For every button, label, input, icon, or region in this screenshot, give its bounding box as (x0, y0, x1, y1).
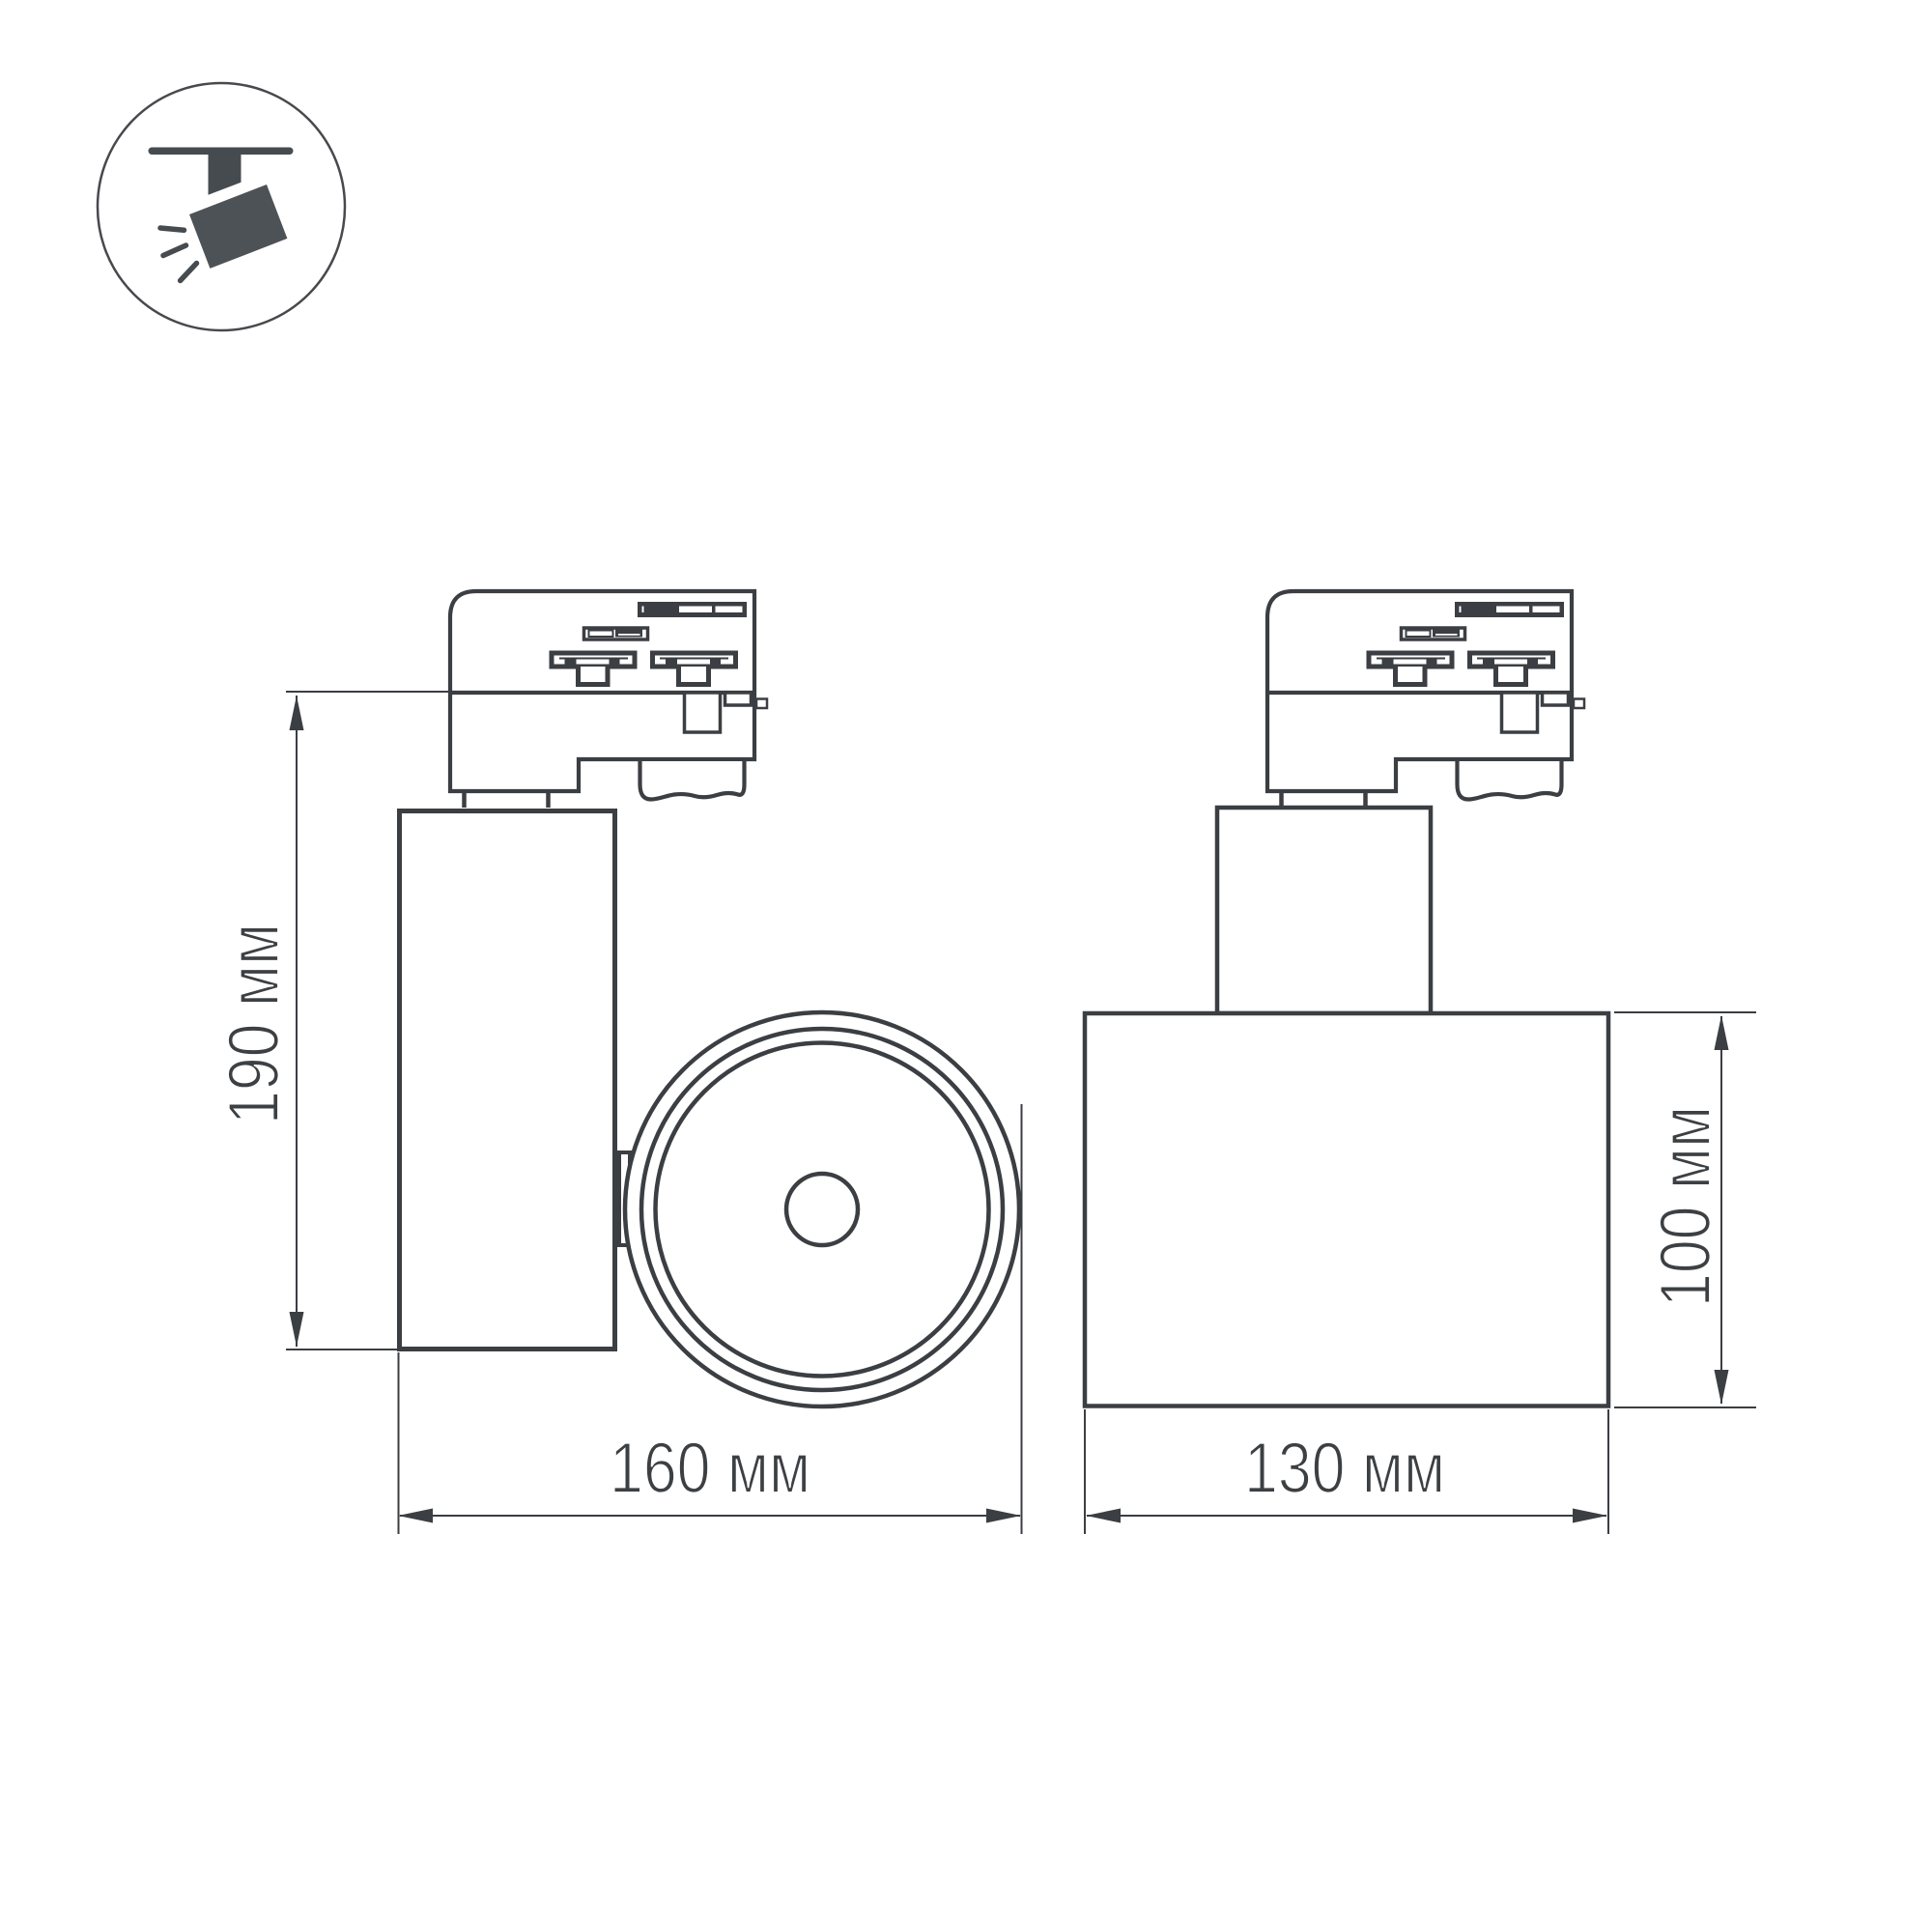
svg-text:190 мм: 190 мм (213, 923, 294, 1124)
svg-text:160 мм: 160 мм (610, 1428, 810, 1508)
svg-text:100 мм: 100 мм (1645, 1106, 1725, 1307)
svg-text:130 мм: 130 мм (1244, 1428, 1445, 1508)
